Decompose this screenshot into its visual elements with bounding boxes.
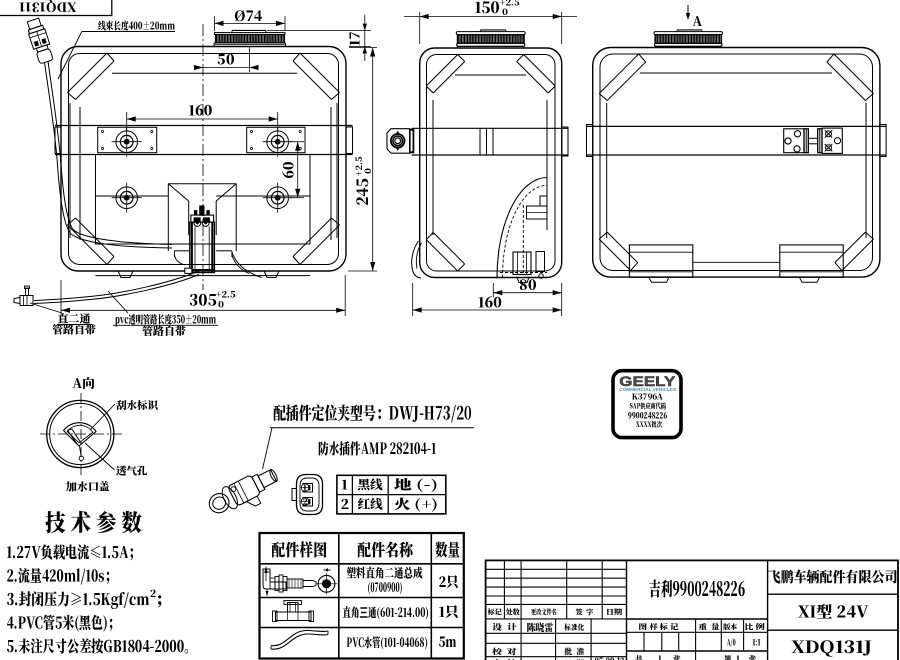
- svg-text:地 (-): 地 (-): [394, 474, 438, 494]
- svg-text:(0700900): (0700900): [368, 578, 403, 596]
- svg-text:配件名称: 配件名称: [357, 536, 413, 561]
- svg-text:标记: 标记: [488, 608, 503, 618]
- svg-text:签 字: 签 字: [576, 608, 594, 618]
- svg-text:防水插件AMP 282104-1: 防水插件AMP 282104-1: [318, 438, 436, 459]
- svg-text:1: 1: [735, 654, 739, 660]
- svg-text:XDQ1311: XDQ1311: [19, 0, 77, 16]
- svg-text:；: ；: [155, 587, 171, 610]
- svg-text:黑线: 黑线: [357, 475, 383, 493]
- svg-text:设 计: 设 计: [492, 622, 518, 633]
- svg-text:管路自带: 管路自带: [52, 322, 96, 338]
- svg-text:2只: 2只: [439, 571, 459, 592]
- svg-text:5.未注尺寸公差按GB1804-2000。: 5.未注尺寸公差按GB1804-2000。: [7, 634, 197, 657]
- svg-text:红线: 红线: [357, 494, 383, 512]
- svg-text:305: 305: [189, 290, 217, 311]
- svg-text:2: 2: [303, 497, 308, 508]
- svg-text:17: 17: [344, 32, 364, 46]
- svg-text:1:1: 1:1: [752, 635, 761, 648]
- svg-text:张: 张: [673, 654, 681, 660]
- svg-text:3.封闭压力≥1.5Kgf/cm: 3.封闭压力≥1.5Kgf/cm: [7, 587, 150, 610]
- svg-text:1: 1: [657, 654, 661, 660]
- svg-text:日期: 日期: [606, 608, 624, 618]
- svg-text:160: 160: [478, 292, 502, 312]
- svg-text:版本: 版本: [723, 622, 738, 632]
- svg-text:数量: 数量: [435, 536, 460, 561]
- svg-text:A向: A向: [72, 373, 95, 392]
- svg-text:配件样图: 配件样图: [271, 536, 327, 561]
- svg-text:0: 0: [502, 5, 508, 18]
- svg-text:A/0: A/0: [727, 635, 736, 648]
- svg-text:刮水标识: 刮水标识: [116, 398, 158, 413]
- svg-text:配插件定位夹型号：DWJ-H73/20: 配插件定位夹型号：DWJ-H73/20: [273, 401, 472, 426]
- svg-text:1: 1: [341, 474, 347, 494]
- svg-text:0: 0: [361, 168, 374, 174]
- svg-text:1.27V负载电流≤1.5A；: 1.27V负载电流≤1.5A；: [7, 540, 141, 563]
- svg-text:陈晓雷: 陈晓雷: [527, 619, 554, 634]
- svg-text:图 样 标 记: 图 样 标 记: [639, 621, 680, 632]
- svg-text:透气孔: 透气孔: [116, 464, 148, 479]
- svg-text:50: 50: [217, 50, 235, 70]
- svg-text:重 量: 重 量: [698, 621, 720, 632]
- svg-text:比 例: 比 例: [744, 621, 765, 632]
- svg-text:张: 张: [749, 654, 757, 660]
- svg-text:吉利9900248226: 吉利9900248226: [649, 575, 745, 602]
- svg-text:60: 60: [279, 161, 299, 179]
- svg-text:XXXX批次: XXXX批次: [636, 420, 663, 430]
- svg-text:150: 150: [474, 0, 499, 18]
- svg-text:标准化: 标准化: [564, 622, 585, 633]
- svg-text:Ø74: Ø74: [234, 6, 263, 26]
- svg-text:XDQ131J: XDQ131J: [791, 633, 873, 658]
- svg-text:4.PVC管5米(黑色)；: 4.PVC管5米(黑色)；: [7, 611, 120, 634]
- svg-text:火 (+): 火 (+): [394, 493, 438, 513]
- svg-text:5m: 5m: [439, 631, 457, 652]
- svg-text:更改文件名: 更改文件名: [531, 608, 557, 618]
- svg-text:2: 2: [340, 493, 348, 513]
- svg-text:飞鹏车辆配件有限公司: 飞鹏车辆配件有限公司: [768, 566, 898, 587]
- svg-text:80: 80: [519, 275, 537, 295]
- svg-text:直角三通(601-214.00): 直角三通(601-214.00): [343, 603, 430, 621]
- svg-text:PVC水管(101-04068): PVC水管(101-04068): [347, 633, 429, 651]
- svg-text:160: 160: [189, 101, 213, 121]
- svg-text:XI型 24V: XI型 24V: [798, 599, 868, 622]
- svg-text:2.流量420ml/10s；: 2.流量420ml/10s；: [7, 564, 117, 587]
- svg-text:校 对: 校 对: [491, 646, 518, 657]
- svg-text:第: 第: [723, 654, 732, 660]
- svg-text:A: A: [692, 11, 702, 30]
- svg-text:0: 0: [218, 298, 224, 311]
- svg-text:共: 共: [635, 654, 643, 660]
- svg-text:1: 1: [302, 483, 306, 494]
- svg-text:处数: 处数: [504, 608, 519, 618]
- svg-text:技 术 参 数: 技 术 参 数: [45, 504, 142, 538]
- svg-text:05.09.12: 05.09.12: [594, 655, 625, 660]
- svg-text:批 准: 批 准: [564, 646, 584, 657]
- svg-text:1只: 1只: [439, 601, 459, 622]
- svg-text:245: 245: [352, 178, 373, 206]
- svg-text:加水口盖: 加水口盖: [65, 479, 110, 495]
- svg-text:管路自带: 管路自带: [142, 323, 186, 339]
